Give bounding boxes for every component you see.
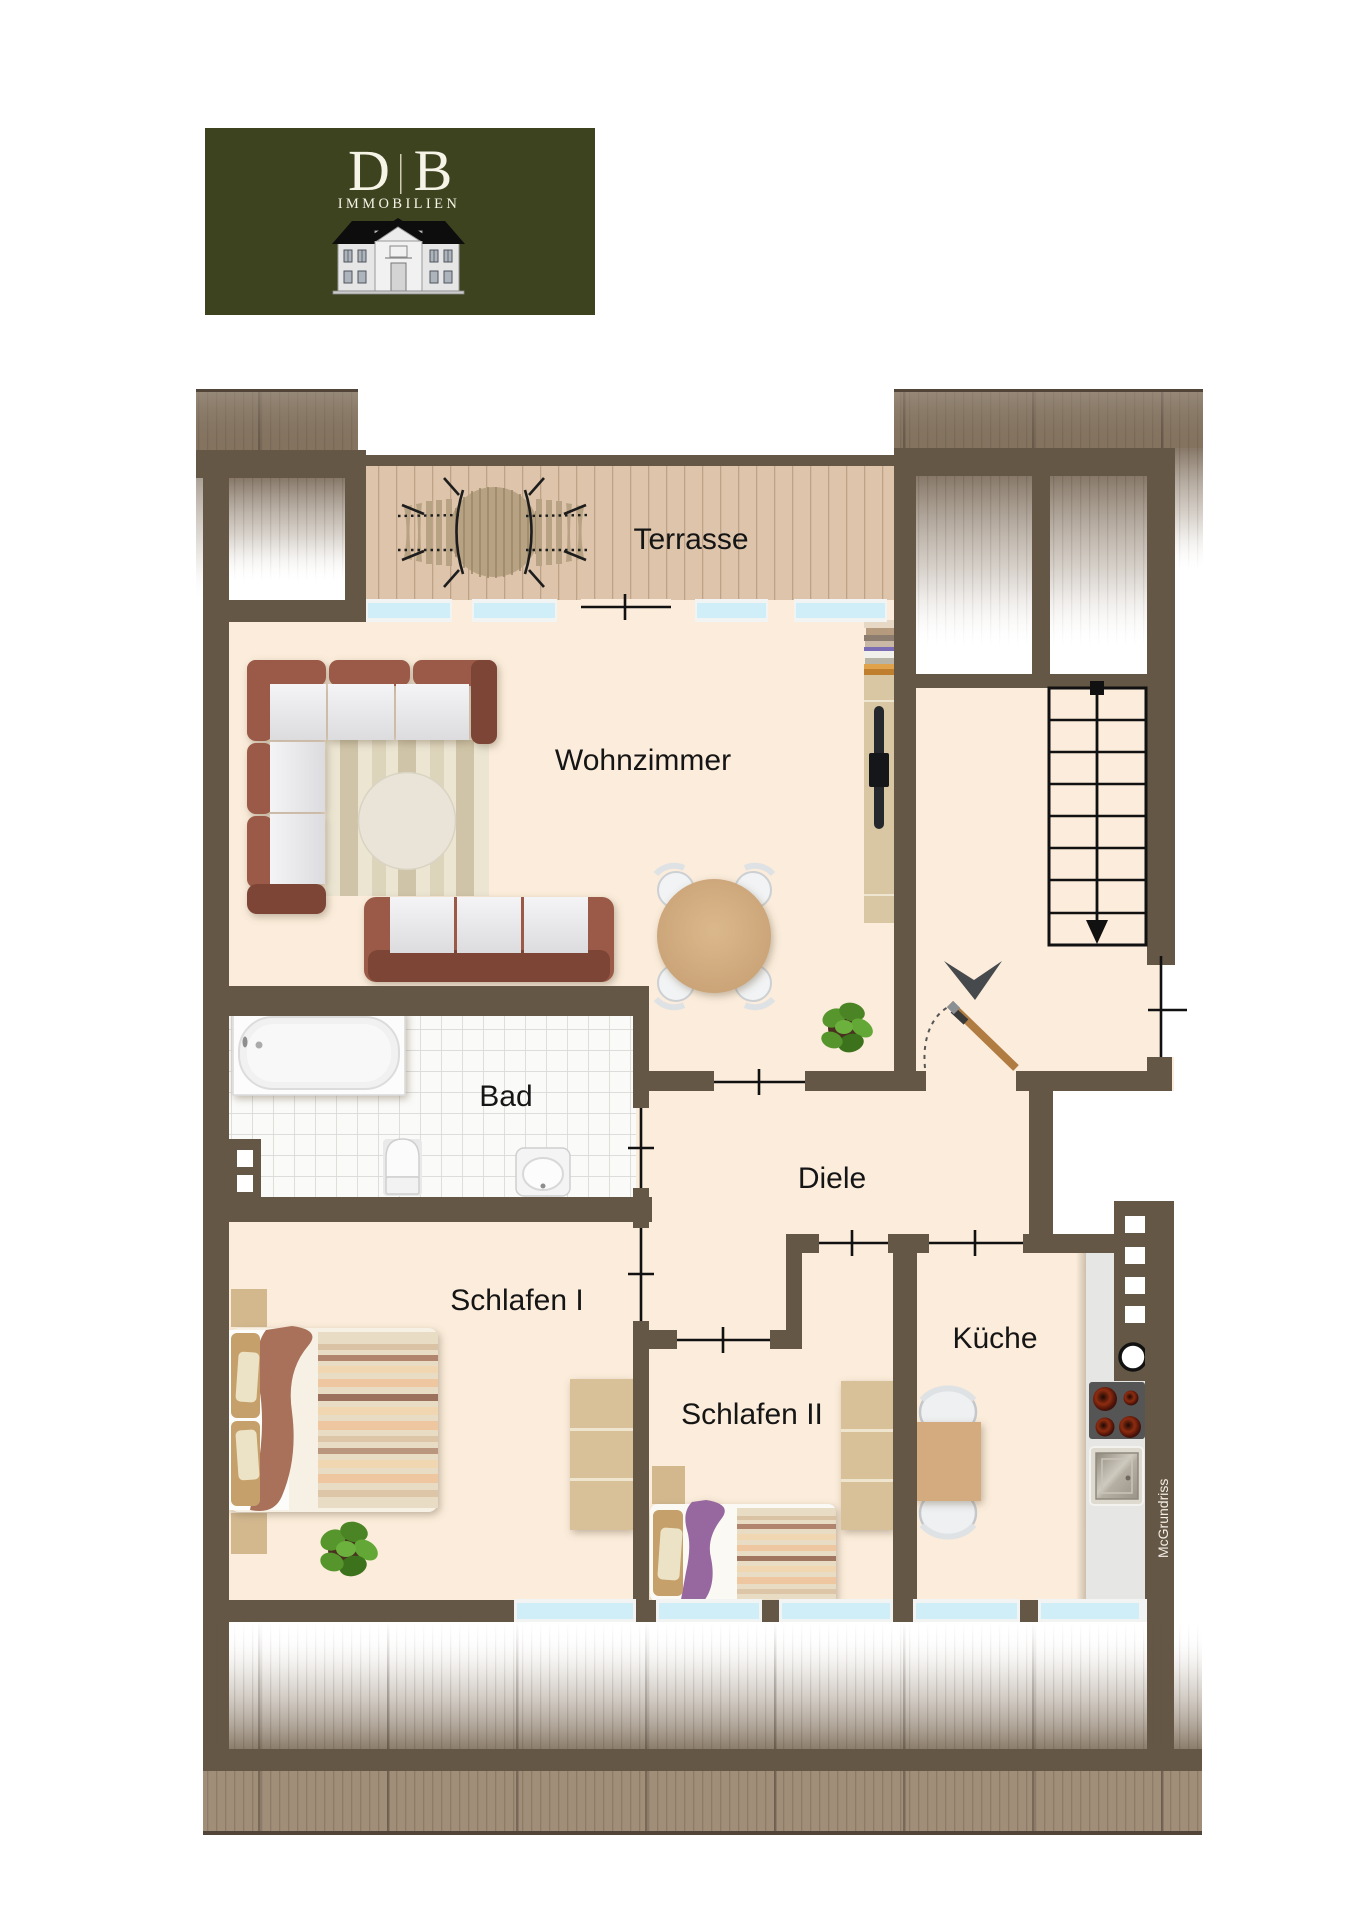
- svg-text:Küche: Küche: [952, 1322, 1037, 1355]
- svg-text:Bad: Bad: [479, 1080, 532, 1113]
- svg-text:IMMOBILIEN: IMMOBILIEN: [338, 196, 461, 212]
- svg-text:Terrasse: Terrasse: [633, 523, 748, 556]
- svg-text:Schlafen I: Schlafen I: [450, 1284, 583, 1317]
- svg-text:Schlafen II: Schlafen II: [681, 1398, 823, 1431]
- svg-text:Diele: Diele: [798, 1162, 866, 1195]
- svg-text:Wohnzimmer: Wohnzimmer: [555, 744, 731, 777]
- svg-text:D: D: [348, 138, 390, 203]
- svg-text:McGrundriss: McGrundriss: [1155, 1479, 1171, 1558]
- svg-text:B: B: [414, 138, 453, 203]
